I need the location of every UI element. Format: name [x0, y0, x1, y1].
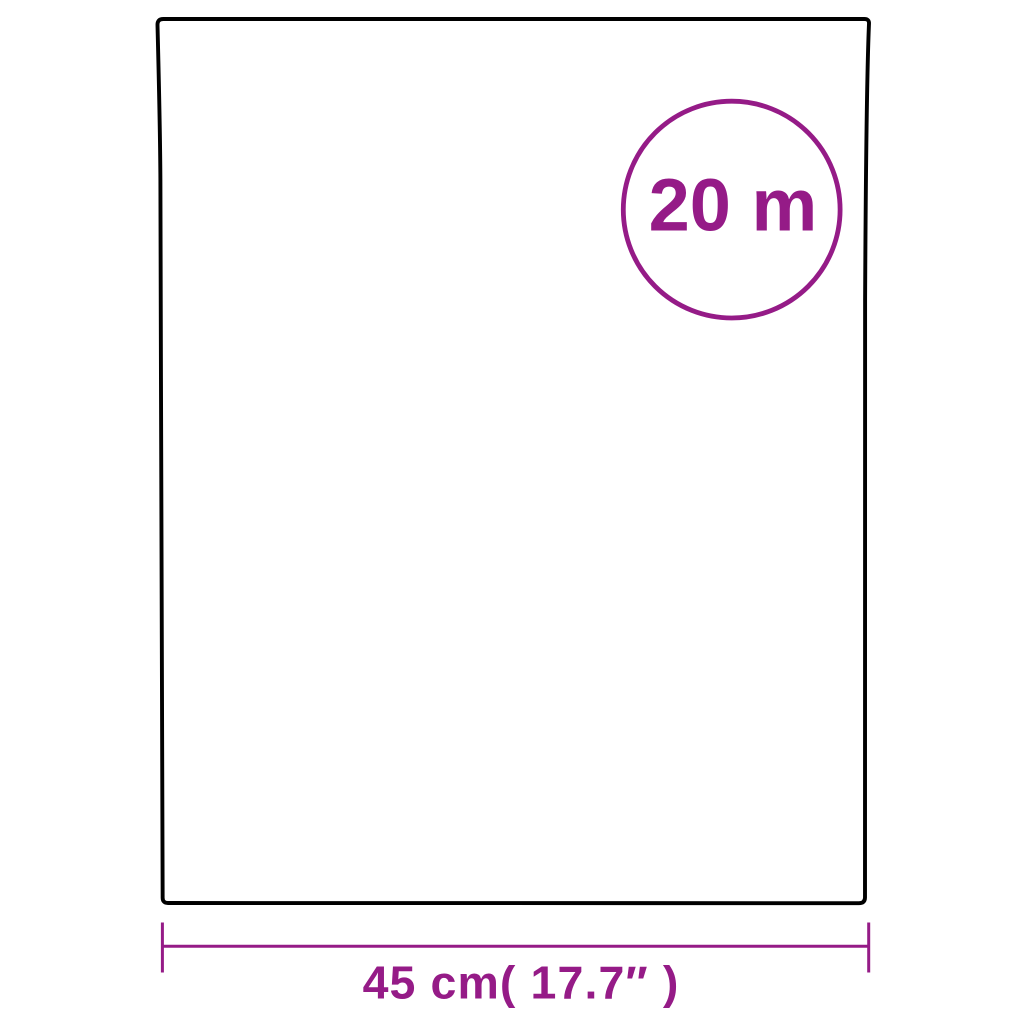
- svg-text:20 m: 20 m: [649, 164, 818, 247]
- svg-text:45 cm( 17.7″ ): 45 cm( 17.7″ ): [363, 957, 680, 1009]
